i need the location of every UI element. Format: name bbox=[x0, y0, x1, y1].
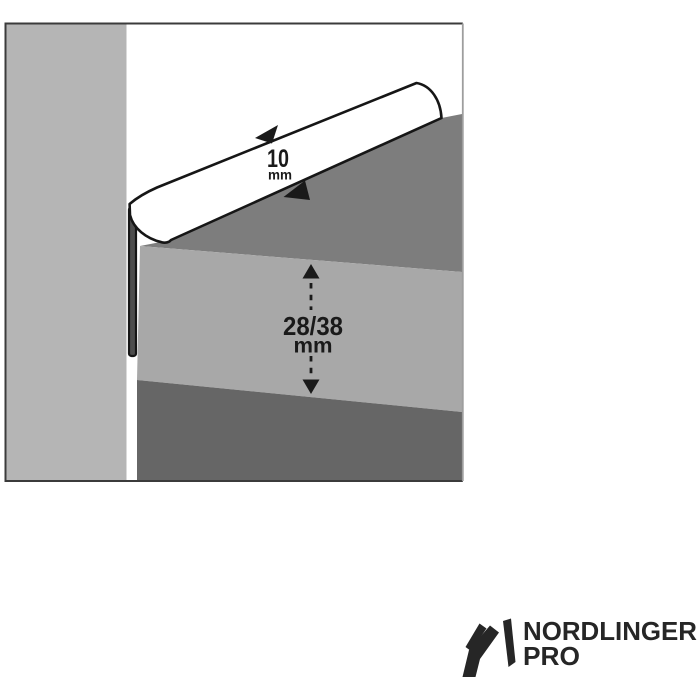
brand-logo: NORDLINGER PRO bbox=[463, 616, 698, 677]
n-logo-icon bbox=[463, 619, 516, 678]
wall-face bbox=[5, 23, 127, 481]
n-logo-right-stroke bbox=[503, 619, 516, 668]
dim-28-38-unit: mm bbox=[294, 334, 333, 358]
product-image: 10 mm 28/38 mm NORDLINGER bbox=[0, 0, 700, 700]
brand-subname: PRO bbox=[523, 641, 580, 671]
cross-section-illustration: 10 mm 28/38 mm bbox=[5, 23, 463, 481]
dim-10-unit: mm bbox=[268, 167, 292, 183]
technical-diagram: 10 mm 28/38 mm NORDLINGER bbox=[0, 0, 700, 700]
trim-flange bbox=[129, 207, 136, 356]
